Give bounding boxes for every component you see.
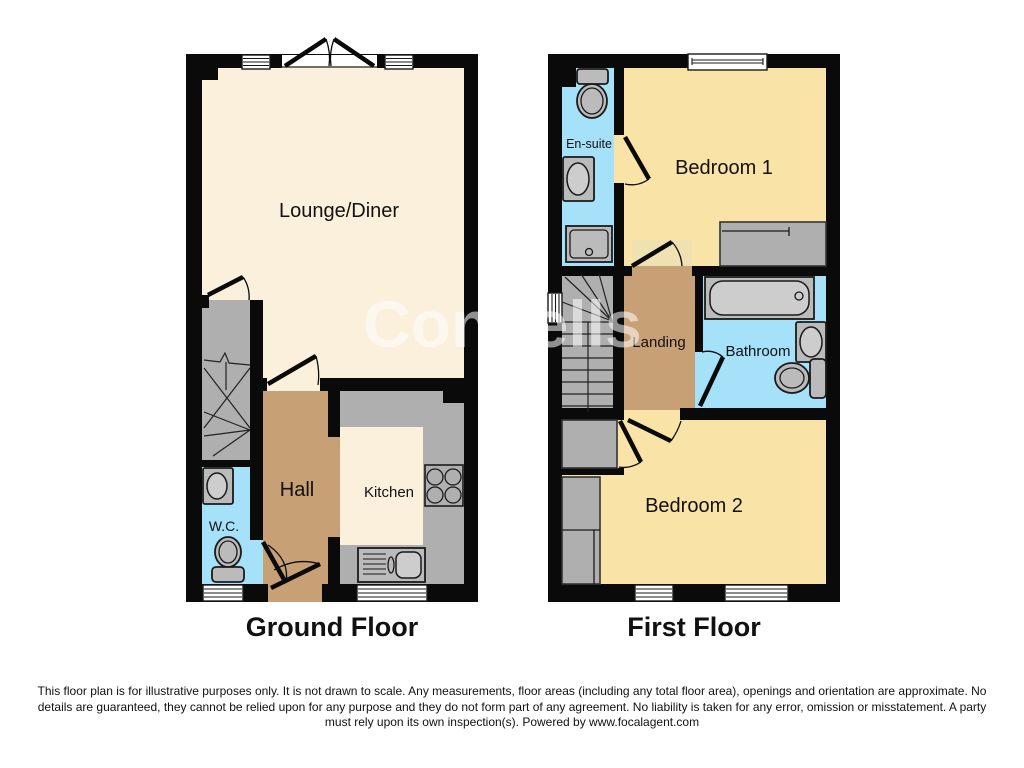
kitchen-window <box>357 585 427 601</box>
bedroom2-wardrobe <box>562 477 600 584</box>
ground-floor-title: Ground Floor <box>186 612 478 643</box>
ensuite-basin <box>563 157 594 201</box>
hall-label: Hall <box>280 479 314 501</box>
disclaimer-line-2: details are guaranteed, they cannot be r… <box>0 700 1024 716</box>
wc-window <box>203 585 243 601</box>
kitchen-sink <box>358 548 425 582</box>
ensuite-toilet <box>577 69 608 118</box>
landing-label: Landing <box>632 334 685 351</box>
wc-label: W.C. <box>209 518 239 534</box>
kitchen-label: Kitchen <box>364 484 414 501</box>
floorplan-page: Lounge/Diner Hall Kitchen W.C. <box>0 0 1024 768</box>
overstairs-cupboard <box>562 420 617 468</box>
bedroom1-window <box>688 54 767 70</box>
patio-french-doors <box>282 39 377 68</box>
disclaimer-line-3: must rely upon its own inspection(s). Po… <box>0 715 1024 731</box>
lounge-diner-label: Lounge/Diner <box>279 200 399 222</box>
lounge-window-left <box>242 55 270 69</box>
kitchen-hob <box>425 465 463 506</box>
floorplan-drawing: Lounge/Diner Hall Kitchen W.C. <box>0 0 1024 768</box>
ground-floor-plan: Lounge/Diner Hall Kitchen W.C. <box>186 39 478 602</box>
bedroom1-wardrobe <box>720 222 826 266</box>
bedroom2-window-right <box>725 585 788 601</box>
bedroom2-window-left <box>635 585 673 601</box>
wc-basin <box>203 468 233 504</box>
ensuite-shower <box>566 226 612 262</box>
disclaimer: This floor plan is for illustrative purp… <box>0 684 1024 731</box>
bathtub <box>705 277 814 319</box>
stairs-window <box>548 293 562 323</box>
lounge-window-right <box>385 55 413 69</box>
first-floor-plan: Bedroom 1 En-suite Landing Bathroom Bedr… <box>548 54 840 602</box>
wc-toilet <box>212 537 244 582</box>
ensuite-label: En-suite <box>566 137 612 151</box>
first-floor-title: First Floor <box>548 612 840 643</box>
disclaimer-line-1: This floor plan is for illustrative purp… <box>0 684 1024 700</box>
bathroom-basin <box>796 322 826 362</box>
bedroom1-label: Bedroom 1 <box>675 157 773 179</box>
bathroom-label: Bathroom <box>725 343 790 360</box>
bedroom2-label: Bedroom 2 <box>645 495 743 517</box>
